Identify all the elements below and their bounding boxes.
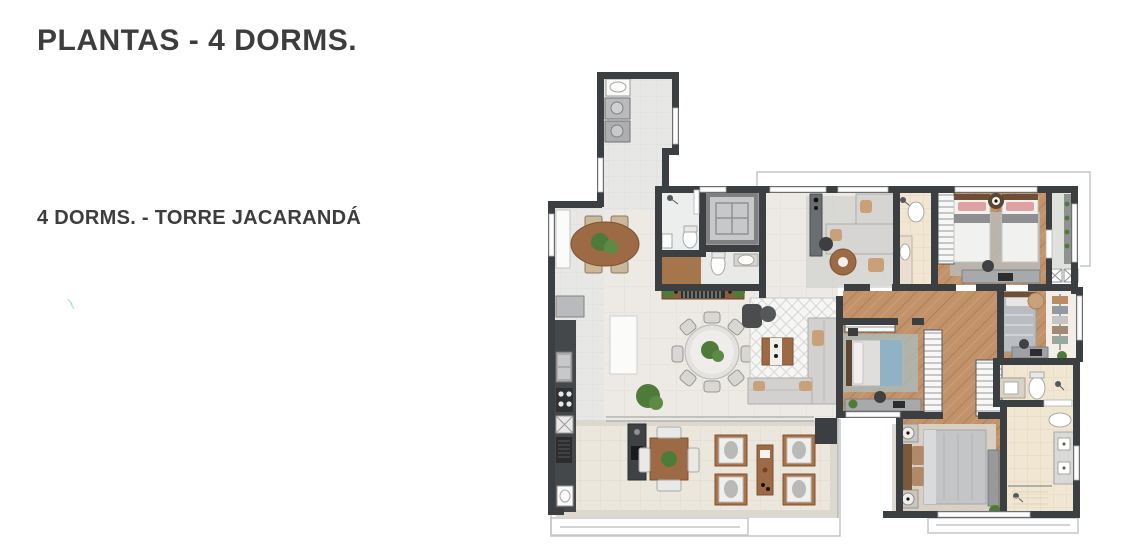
floor-plan	[540, 70, 1100, 545]
elevator-cab	[708, 195, 756, 242]
living-set	[742, 298, 842, 404]
master-bedroom-set	[892, 424, 1001, 517]
wood-nook-floor	[660, 255, 701, 285]
tv-room-set	[806, 194, 896, 288]
laundry-fixtures	[605, 79, 630, 142]
page-title: PLANTAS - 4 DORMS.	[37, 24, 357, 58]
service-hall-floor	[602, 150, 664, 210]
page: { "header": { "title": "PLANTAS - 4 DORM…	[0, 0, 1145, 545]
breakfast-table	[556, 210, 639, 273]
cursor-artifact	[66, 297, 80, 311]
plan-variant-label: 4 DORMS. - TORRE JACARANDÁ	[37, 207, 361, 230]
